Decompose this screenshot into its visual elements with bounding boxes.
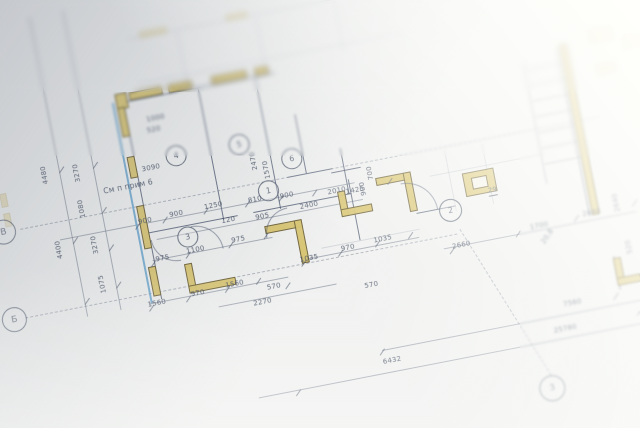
dimension-label: 3270 xyxy=(89,235,100,255)
dimension-label: 900 xyxy=(358,181,369,196)
dimension-label: 2270 xyxy=(253,296,273,307)
dimension-tick xyxy=(632,200,637,207)
dimension-tick xyxy=(73,237,78,244)
dimension-label: 2400 xyxy=(299,200,319,211)
dimension-tick xyxy=(163,216,168,223)
plan-line xyxy=(544,156,581,164)
dimension-label: 3270 xyxy=(71,163,82,183)
plan-line xyxy=(532,94,569,102)
plan-line xyxy=(444,211,637,249)
dimension-label: 570 xyxy=(364,280,379,291)
dimension-label: 3090 xyxy=(141,162,161,173)
insulated-wall-block xyxy=(139,26,168,38)
axis-bubble: В xyxy=(0,217,18,246)
insulated-wall-block xyxy=(0,193,9,208)
dimension-label: 900 xyxy=(137,216,152,227)
dimension-tick xyxy=(85,298,90,305)
dimension-label: 570 xyxy=(266,281,281,292)
insulated-wall-block xyxy=(620,30,640,51)
dimension-label: 1000 xyxy=(146,112,166,123)
plan-line xyxy=(523,62,548,184)
floor-plan-drawing: 10005203090См п прим 6900900125081090020… xyxy=(0,0,640,428)
dimension-label: 4480 xyxy=(39,165,50,185)
door-swing-arc xyxy=(401,177,439,215)
axis-line xyxy=(459,229,551,375)
dimension-tick xyxy=(285,282,290,289)
plan-line xyxy=(529,78,566,86)
axis-bubble: 3 xyxy=(537,373,567,403)
dimension-label: 900 xyxy=(279,190,294,201)
dimension-label: 6432 xyxy=(382,355,402,366)
dimension-label: 900 xyxy=(169,209,184,220)
dimension-label: 1075 xyxy=(97,274,108,294)
dimension-tick xyxy=(109,244,114,251)
plan-line xyxy=(259,315,640,398)
plan-line xyxy=(541,141,578,149)
dimension-label: 4400 xyxy=(53,240,64,260)
dimension-label: 7560 xyxy=(563,297,583,308)
dimension-label: 905 xyxy=(255,211,270,222)
plan-line xyxy=(535,109,572,117)
blueprint-photo: 10005203090См п прим 6900900125081090020… xyxy=(0,0,640,428)
axis-bubble: Б xyxy=(0,305,29,334)
axis-line xyxy=(20,116,599,230)
dimension-label: 970 xyxy=(340,242,355,253)
dimension-tick xyxy=(574,215,579,222)
plan-line xyxy=(526,62,563,70)
dimension-label: 970 xyxy=(190,288,205,299)
dimension-tick xyxy=(59,166,64,173)
dimension-label: 2470 xyxy=(248,151,259,171)
insulated-wall-block xyxy=(225,11,248,22)
paper-sheet: 10005203090См п прим 6900900125081090020… xyxy=(0,0,640,428)
dimension-label: 2640 xyxy=(610,193,621,213)
dimension-tick xyxy=(613,293,618,300)
insulated-wall-block xyxy=(595,60,617,76)
insulated-wall-block xyxy=(126,156,138,179)
dimension-label: 975 xyxy=(155,253,170,264)
dimension-tick xyxy=(93,162,98,169)
dimension-label: 700 xyxy=(365,165,376,180)
plan-line xyxy=(556,47,590,216)
dimension-label: 2660 xyxy=(451,239,471,250)
insulated-wall-block xyxy=(586,24,615,45)
dimension-tick xyxy=(380,348,385,355)
dimension-label: 2640 xyxy=(582,207,602,218)
plan-line xyxy=(62,11,121,311)
dimension-label: 1080 xyxy=(76,199,87,219)
dimension-label: 520 xyxy=(146,124,161,135)
room-number-bubble: 4 xyxy=(164,143,189,168)
plan-line xyxy=(128,0,403,40)
dimension-label: 520 xyxy=(624,239,635,254)
dimension-label: 29 xyxy=(487,185,498,197)
dimension-label: 25780 xyxy=(553,323,577,335)
dimension-tick xyxy=(116,281,121,288)
room-number-bubble: 2 xyxy=(437,197,464,224)
insulated-wall-block xyxy=(559,43,600,215)
plan-line xyxy=(382,293,640,351)
